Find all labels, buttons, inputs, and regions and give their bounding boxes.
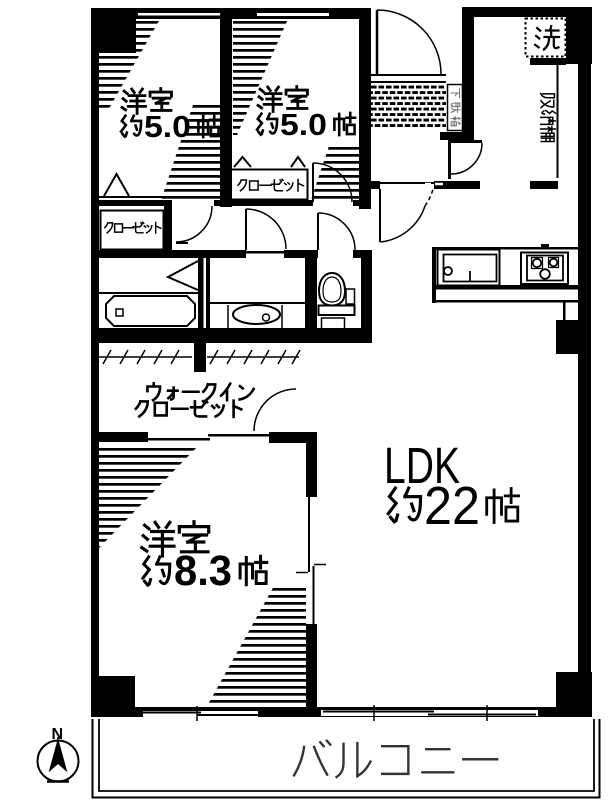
svg-text:5.0: 5.0 bbox=[144, 109, 191, 144]
svg-text:22: 22 bbox=[424, 476, 480, 536]
svg-text:5.0: 5.0 bbox=[280, 107, 327, 142]
svg-text:N: N bbox=[52, 726, 64, 743]
svg-text:8.3: 8.3 bbox=[174, 547, 232, 595]
